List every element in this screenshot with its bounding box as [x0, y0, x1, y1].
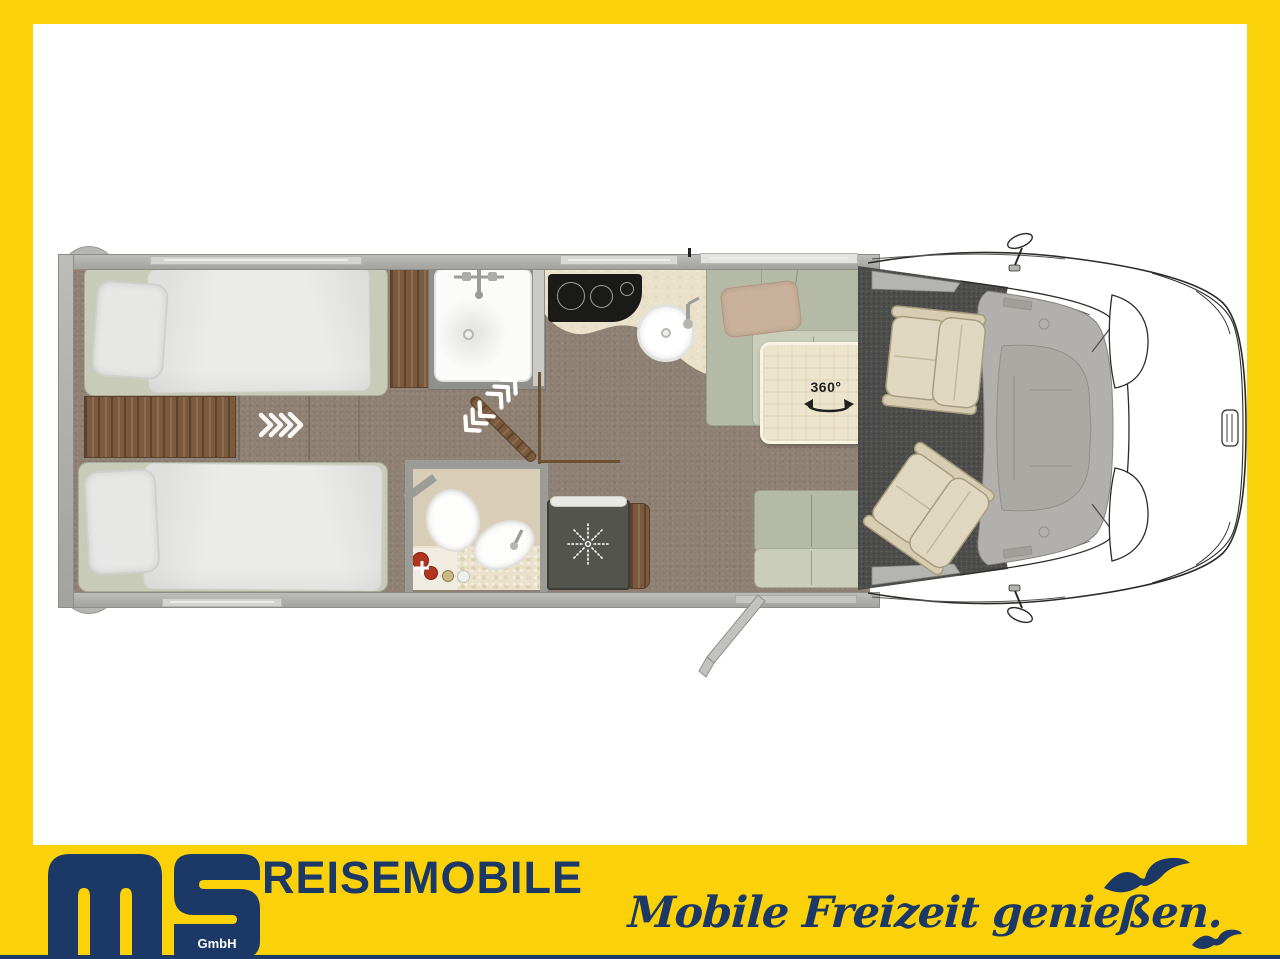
shower-drain — [463, 329, 474, 340]
grille-badge — [1222, 410, 1238, 446]
roof-antenna-mark — [688, 248, 691, 257]
seagull-icon — [1104, 856, 1190, 900]
wardrobe — [390, 266, 430, 388]
headlight-top — [1109, 295, 1148, 388]
door-track-vertical — [538, 372, 541, 464]
burner-medium — [590, 285, 613, 308]
gold-knob — [442, 570, 454, 582]
logo-m — [48, 854, 162, 958]
window-bed-bottom — [162, 598, 282, 607]
wall-rear — [58, 254, 74, 608]
cabinet-by-heater — [630, 503, 650, 589]
headlight-bottom — [1109, 468, 1148, 561]
vehicle-front — [838, 224, 1250, 668]
frame-left — [0, 0, 33, 959]
slide-chevrons-icon — [258, 412, 304, 438]
shower-glass — [533, 264, 544, 386]
side-mirror-icon — [1006, 585, 1035, 625]
floor-seam — [238, 396, 240, 460]
entry-door-icon — [694, 592, 770, 682]
logo-gmbh-label: GmbH — [178, 936, 256, 951]
sink-drain — [661, 328, 671, 338]
basin-faucet-icon — [506, 522, 530, 550]
bed-pillow-bottom — [83, 468, 160, 576]
kitchen-faucet-icon — [676, 294, 702, 330]
bed-duvet-top — [147, 267, 370, 393]
door-track-horizontal — [540, 460, 620, 463]
burner-large — [557, 282, 585, 310]
floor-seam — [358, 396, 360, 460]
heater-fan-icon — [566, 522, 610, 566]
bathroom-wall-top — [405, 460, 548, 469]
bathroom-wall-left — [405, 466, 413, 592]
bed-pillow-top — [91, 280, 170, 381]
window-kitchen — [560, 255, 678, 265]
bed-duvet-bottom — [143, 463, 382, 591]
page: 360° — [0, 0, 1280, 959]
window-lounge — [700, 253, 858, 264]
driver-swivel-seat — [882, 305, 987, 414]
floor-seam — [308, 396, 310, 460]
frame-right — [1247, 0, 1280, 959]
burner-small — [620, 282, 634, 296]
heater-top-band — [550, 496, 627, 507]
seagull-icon — [1192, 926, 1242, 952]
window-bed-top — [150, 256, 362, 265]
headboard-step — [84, 396, 236, 458]
side-mirror-icon — [1006, 231, 1035, 271]
sofa-pillow — [719, 279, 803, 338]
cross-mark-icon — [414, 560, 430, 576]
frame-top — [0, 0, 1280, 24]
wordmark: REISEMOBILE — [262, 852, 583, 904]
white-knob — [457, 570, 470, 583]
